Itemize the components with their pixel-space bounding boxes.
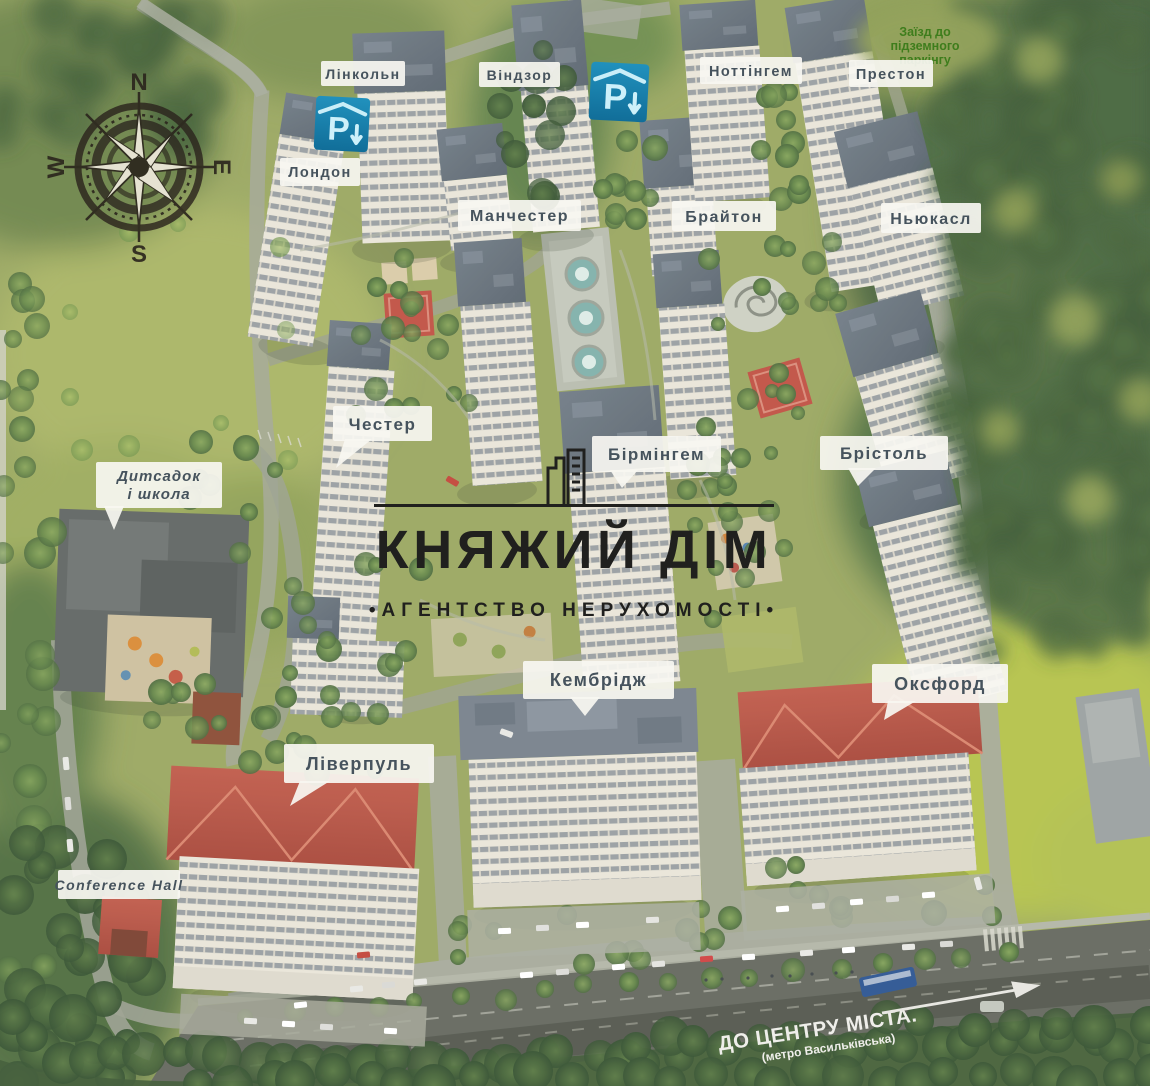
svg-text:Лінкольн: Лінкольн (325, 66, 400, 82)
svg-text:Conference Hall: Conference Hall (54, 877, 183, 893)
svg-text:Ліверпуль: Ліверпуль (306, 754, 412, 774)
svg-text:підземного: підземного (890, 39, 959, 53)
svg-text:Кембрідж: Кембрідж (550, 670, 647, 690)
svg-text:Ноттінгем: Ноттінгем (709, 64, 793, 80)
svg-text:Брайтон: Брайтон (685, 209, 763, 226)
svg-text:Лондон: Лондон (288, 165, 352, 181)
svg-text:Манчестер: Манчестер (470, 208, 569, 225)
svg-text:E: E (208, 159, 235, 175)
svg-text:Ньюкасл: Ньюкасл (890, 211, 972, 228)
svg-text:Оксфорд: Оксфорд (894, 674, 986, 694)
svg-text:і школа: і школа (127, 486, 190, 503)
svg-text:Престон: Престон (856, 67, 926, 83)
svg-text:Брістоль: Брістоль (840, 444, 928, 463)
svg-text:S: S (131, 241, 147, 268)
svg-text:Дитсадок: Дитсадок (115, 468, 201, 485)
svg-text:P: P (327, 109, 351, 147)
svg-text:КНЯЖИЙ ДІМ: КНЯЖИЙ ДІМ (376, 519, 773, 580)
svg-text:•АГЕНТСТВО НЕРУХОМОСТІ•: •АГЕНТСТВО НЕРУХОМОСТІ• (369, 600, 779, 621)
svg-text:Бірмінгем: Бірмінгем (608, 445, 705, 464)
svg-text:P: P (602, 76, 628, 118)
svg-text:Заїзд до: Заїзд до (899, 25, 951, 39)
svg-text:N: N (130, 69, 147, 96)
svg-text:Віндзор: Віндзор (487, 67, 553, 83)
svg-text:Честер: Честер (349, 415, 417, 434)
svg-text:W: W (43, 155, 70, 178)
